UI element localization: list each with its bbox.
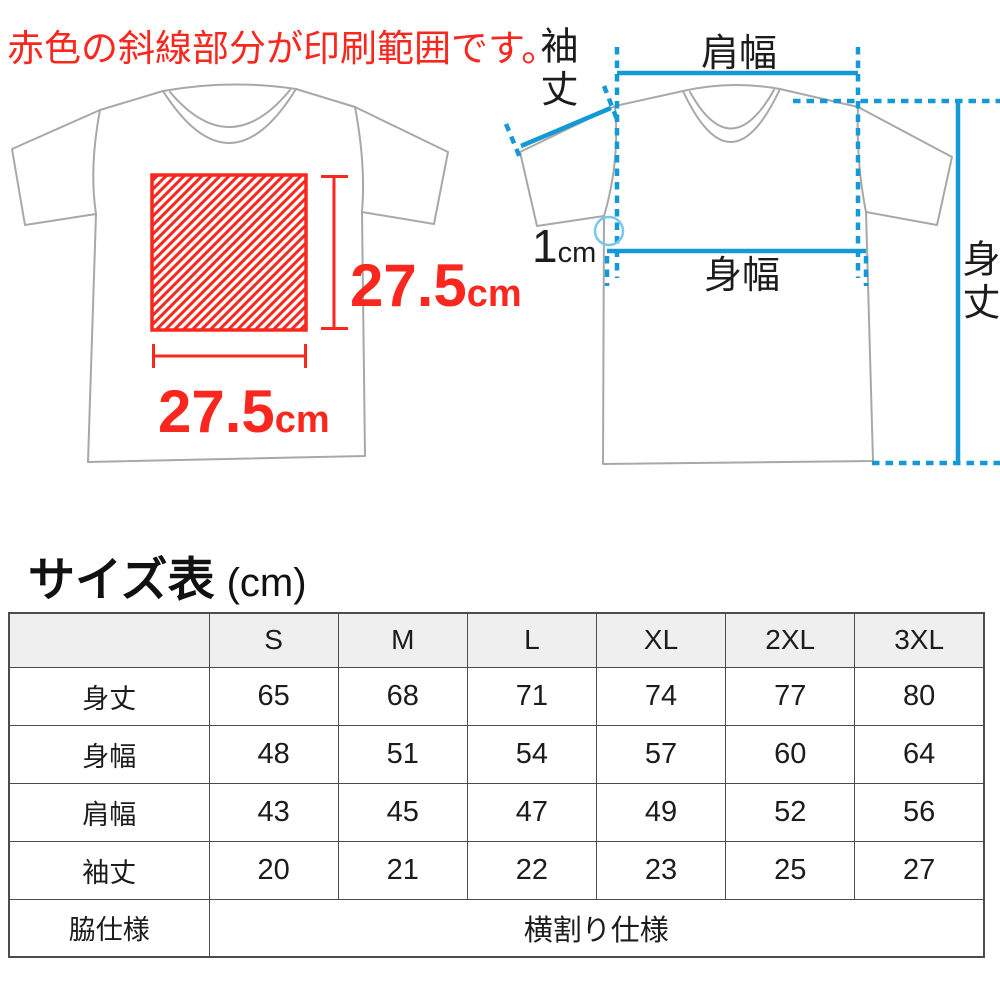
row-label: 身丈	[9, 667, 209, 725]
cell: 54	[467, 725, 596, 783]
cell: 64	[855, 725, 984, 783]
cell: 80	[855, 667, 984, 725]
cell: 65	[209, 667, 338, 725]
cell: 51	[338, 725, 467, 783]
cell: 22	[467, 841, 596, 899]
cell: 20	[209, 841, 338, 899]
body-length-label: 身丈	[958, 239, 996, 325]
table-row-body-width: 身幅 48 51 54 57 60 64	[9, 725, 984, 783]
row-label: 肩幅	[9, 783, 209, 841]
cell: 47	[467, 783, 596, 841]
shoulder-width-label: 肩幅	[701, 35, 777, 73]
size-table-corner-cell	[9, 613, 209, 667]
table-row-side-spec: 脇仕様 横割り仕様	[9, 899, 984, 957]
cell: 60	[726, 725, 855, 783]
cell: 23	[596, 841, 725, 899]
row-label: 身幅	[9, 725, 209, 783]
cell: 27	[855, 841, 984, 899]
print-height-value: 27.5	[350, 256, 467, 316]
sleeve-length-label: 袖丈	[536, 26, 574, 112]
collar-offset-unit: cm	[558, 239, 597, 268]
cell: 56	[855, 783, 984, 841]
body-width-label: 身幅	[704, 257, 780, 295]
collar-back-seam	[163, 84, 296, 91]
row-label: 袖丈	[9, 841, 209, 899]
size-table-header-row: S M L XL 2XL 3XL	[9, 613, 984, 667]
cell: 45	[338, 783, 467, 841]
cell: 49	[596, 783, 725, 841]
cell: 21	[338, 841, 467, 899]
column-header-s: S	[209, 613, 338, 667]
print-area-hatch	[152, 175, 306, 330]
column-header-2xl: 2XL	[726, 613, 855, 667]
cell: 71	[467, 667, 596, 725]
size-table-title-text: サイズ表	[28, 541, 215, 610]
collar-offset-label: 1cm	[532, 223, 596, 269]
cell: 25	[726, 841, 855, 899]
column-header-l: L	[467, 613, 596, 667]
column-header-xl: XL	[596, 613, 725, 667]
merged-spec-cell: 横割り仕様	[209, 899, 984, 957]
print-width-value: 27.5	[158, 382, 275, 442]
page: 赤色の斜線部分が印刷範囲です。 袖丈 肩幅 身幅 身丈 1cm 27.5cm 2…	[0, 0, 1000, 1000]
print-height-label: 27.5cm	[350, 256, 522, 316]
cell: 48	[209, 725, 338, 783]
size-table: S M L XL 2XL 3XL 身丈 65 68 71 74 77 80 身幅…	[8, 612, 985, 958]
column-header-3xl: 3XL	[855, 613, 984, 667]
print-height-unit: cm	[467, 275, 522, 313]
column-header-m: M	[338, 613, 467, 667]
size-table-title: サイズ表 (cm)	[28, 541, 307, 610]
cell: 68	[338, 667, 467, 725]
sleeve-length-tick-cuff	[506, 124, 521, 160]
row-label: 脇仕様	[9, 899, 209, 957]
print-width-unit: cm	[275, 401, 330, 439]
table-row-shoulder-width: 肩幅 43 45 47 49 52 56	[9, 783, 984, 841]
notice-text: 赤色の斜線部分が印刷範囲です。	[7, 18, 558, 72]
cell: 52	[726, 783, 855, 841]
size-table-title-unit: (cm)	[227, 561, 307, 606]
cell: 43	[209, 783, 338, 841]
table-row-sleeve-length: 袖丈 20 21 22 23 25 27	[9, 841, 984, 899]
collar-back-seam	[683, 85, 780, 91]
cell: 74	[596, 667, 725, 725]
collar-offset-value: 1	[532, 223, 558, 269]
cell: 77	[726, 667, 855, 725]
print-width-label: 27.5cm	[158, 382, 330, 442]
table-row-body-length: 身丈 65 68 71 74 77 80	[9, 667, 984, 725]
cell: 57	[596, 725, 725, 783]
